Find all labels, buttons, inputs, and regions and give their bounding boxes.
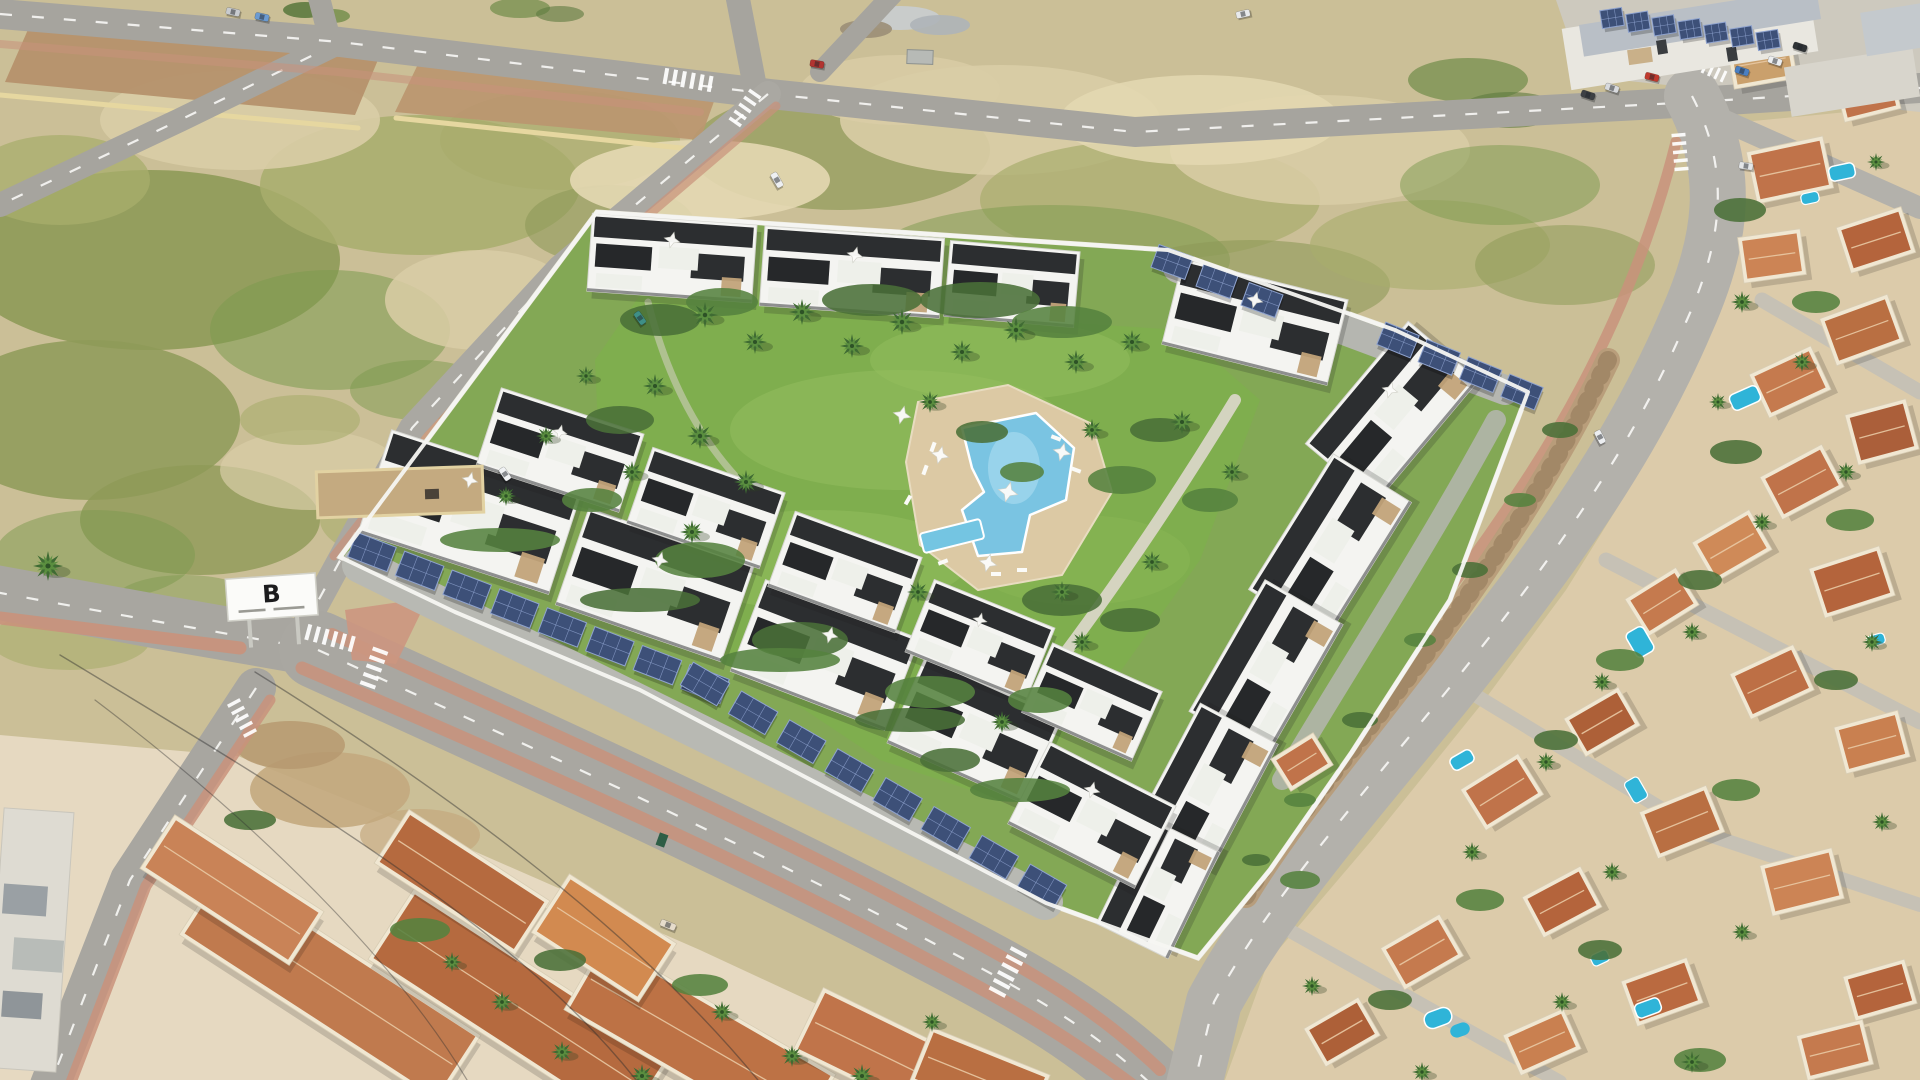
scene-root bbox=[0, 0, 1920, 1080]
aerial-photo-stage: B bbox=[0, 0, 1920, 1080]
villa bbox=[1738, 228, 1813, 289]
aerial-scene: B bbox=[0, 0, 1920, 1080]
billboard-logo: B bbox=[261, 579, 281, 608]
